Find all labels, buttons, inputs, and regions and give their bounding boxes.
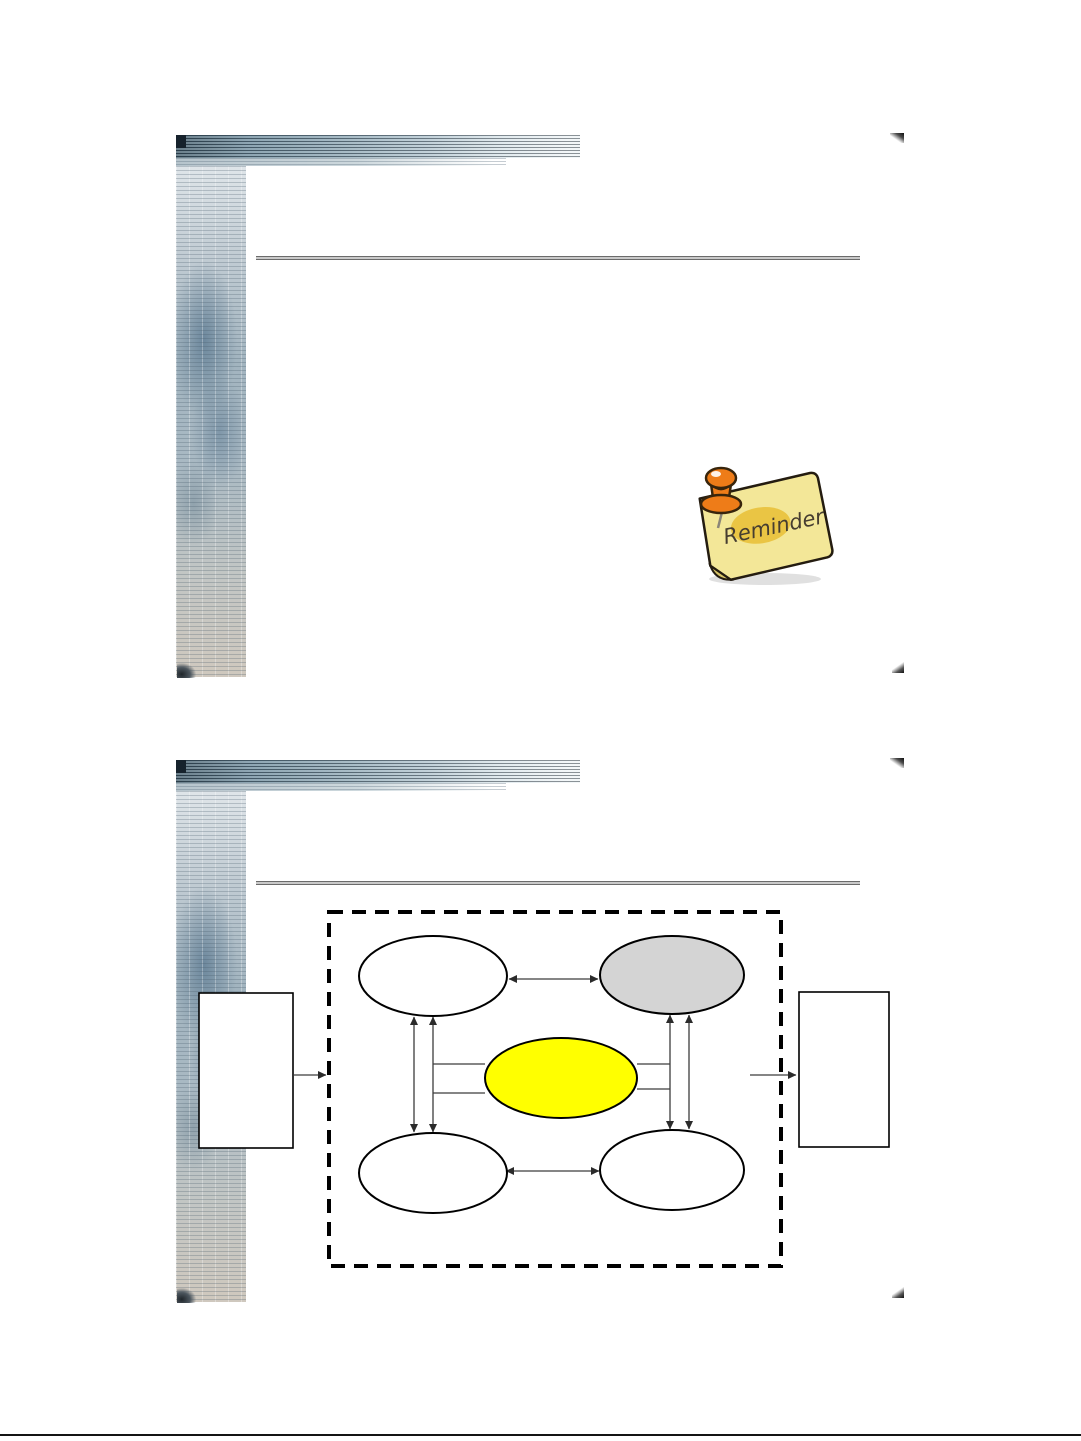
pin-base — [701, 495, 741, 513]
slide1-banner — [176, 135, 580, 158]
slide1-banner-sub-stripe — [176, 158, 506, 166]
slide1-corner-blob-bottom-left — [177, 663, 196, 678]
ellipse-top-left — [359, 936, 507, 1016]
slide1-title-divider — [256, 256, 860, 260]
slide1-corner-mark-top-right — [890, 133, 904, 143]
ellipse-bottom-left — [359, 1133, 507, 1213]
slide1-banner-corner — [176, 135, 186, 148]
handout-page: Reminder — [0, 0, 1081, 1441]
ellipse-top-right — [600, 936, 744, 1014]
slide1-corner-mark-bottom-right — [892, 662, 904, 673]
reminder-note-image: Reminder — [675, 462, 840, 586]
ellipse-bottom-right — [600, 1130, 744, 1210]
pin-knob — [706, 468, 736, 488]
reminder-note-svg: Reminder — [675, 462, 840, 586]
slide-1: Reminder — [176, 133, 906, 679]
process-diagram — [176, 758, 906, 1304]
ellipse-center — [485, 1038, 637, 1118]
slide1-sidebar-texture — [176, 166, 246, 677]
process-diagram-svg — [176, 758, 906, 1304]
pin-highlight — [711, 471, 721, 477]
left-rectangle-node — [199, 993, 293, 1148]
page-bottom-rule — [0, 1434, 1081, 1436]
slide-2 — [176, 758, 906, 1304]
right-rectangle-node — [799, 992, 889, 1147]
